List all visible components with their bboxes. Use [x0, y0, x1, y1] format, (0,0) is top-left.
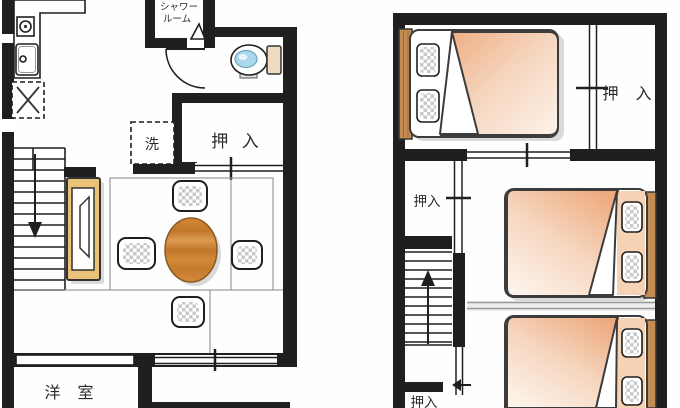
closet-label: 押入	[414, 194, 441, 210]
toilet-tank	[267, 46, 281, 74]
pillow	[417, 90, 439, 122]
chair	[118, 238, 155, 269]
washer-label: 洗	[145, 137, 159, 153]
double-bed	[505, 316, 656, 408]
closet-1f: 押 入	[195, 132, 283, 180]
pillow	[622, 377, 642, 405]
door-swing-arc	[166, 49, 205, 88]
floorplan-canvas: シャワー ルーム 押 入	[0, 0, 680, 408]
tv-icon	[80, 197, 89, 257]
closet-label: 押入	[411, 395, 438, 408]
pillow	[622, 202, 642, 232]
chair	[172, 297, 204, 327]
window	[2, 34, 14, 43]
pillow	[622, 252, 642, 282]
shower-room-label: ルーム	[163, 14, 191, 25]
kitchen-sink-icon	[16, 44, 38, 75]
shower-door-icon	[191, 24, 205, 39]
pillow	[417, 44, 439, 76]
sliding-door-bedroom1	[467, 143, 570, 167]
sliding-door	[195, 163, 283, 174]
closet-label: 押 入	[211, 132, 262, 152]
washing-machine-space: 洗	[131, 122, 174, 164]
kitchen-counter	[14, 0, 85, 78]
sliding-window	[155, 349, 277, 371]
staircase-down	[14, 148, 65, 290]
staircase-up	[405, 252, 452, 345]
western-room-label: 洋 室	[44, 383, 99, 402]
stairs-down-arrow-icon	[28, 154, 42, 238]
floor-plan-1f: シャワー ルーム 押 入	[2, 0, 297, 408]
closet-label: 押 入	[602, 84, 657, 103]
refrigerator-space	[12, 82, 44, 118]
double-bed	[505, 189, 656, 301]
toilet-icon	[231, 45, 281, 78]
round-dining-table	[165, 218, 221, 286]
floor-plan-2f: 押 入 押入	[393, 13, 667, 408]
window	[16, 355, 134, 365]
chair	[173, 181, 207, 211]
floorplan-image: シャワー ルーム 押 入	[0, 0, 680, 408]
closet-2f-top: 押 入	[576, 25, 658, 149]
shower-room-label: シャワー	[160, 2, 198, 13]
double-bed	[399, 29, 564, 141]
sliding-door-stair-landing	[452, 347, 471, 395]
tv-cabinet	[67, 178, 104, 284]
toilet-room	[166, 45, 281, 88]
chair	[232, 241, 262, 269]
dining-set	[118, 181, 262, 327]
room-divider	[467, 301, 655, 311]
pillow	[622, 329, 642, 357]
window	[2, 119, 14, 132]
